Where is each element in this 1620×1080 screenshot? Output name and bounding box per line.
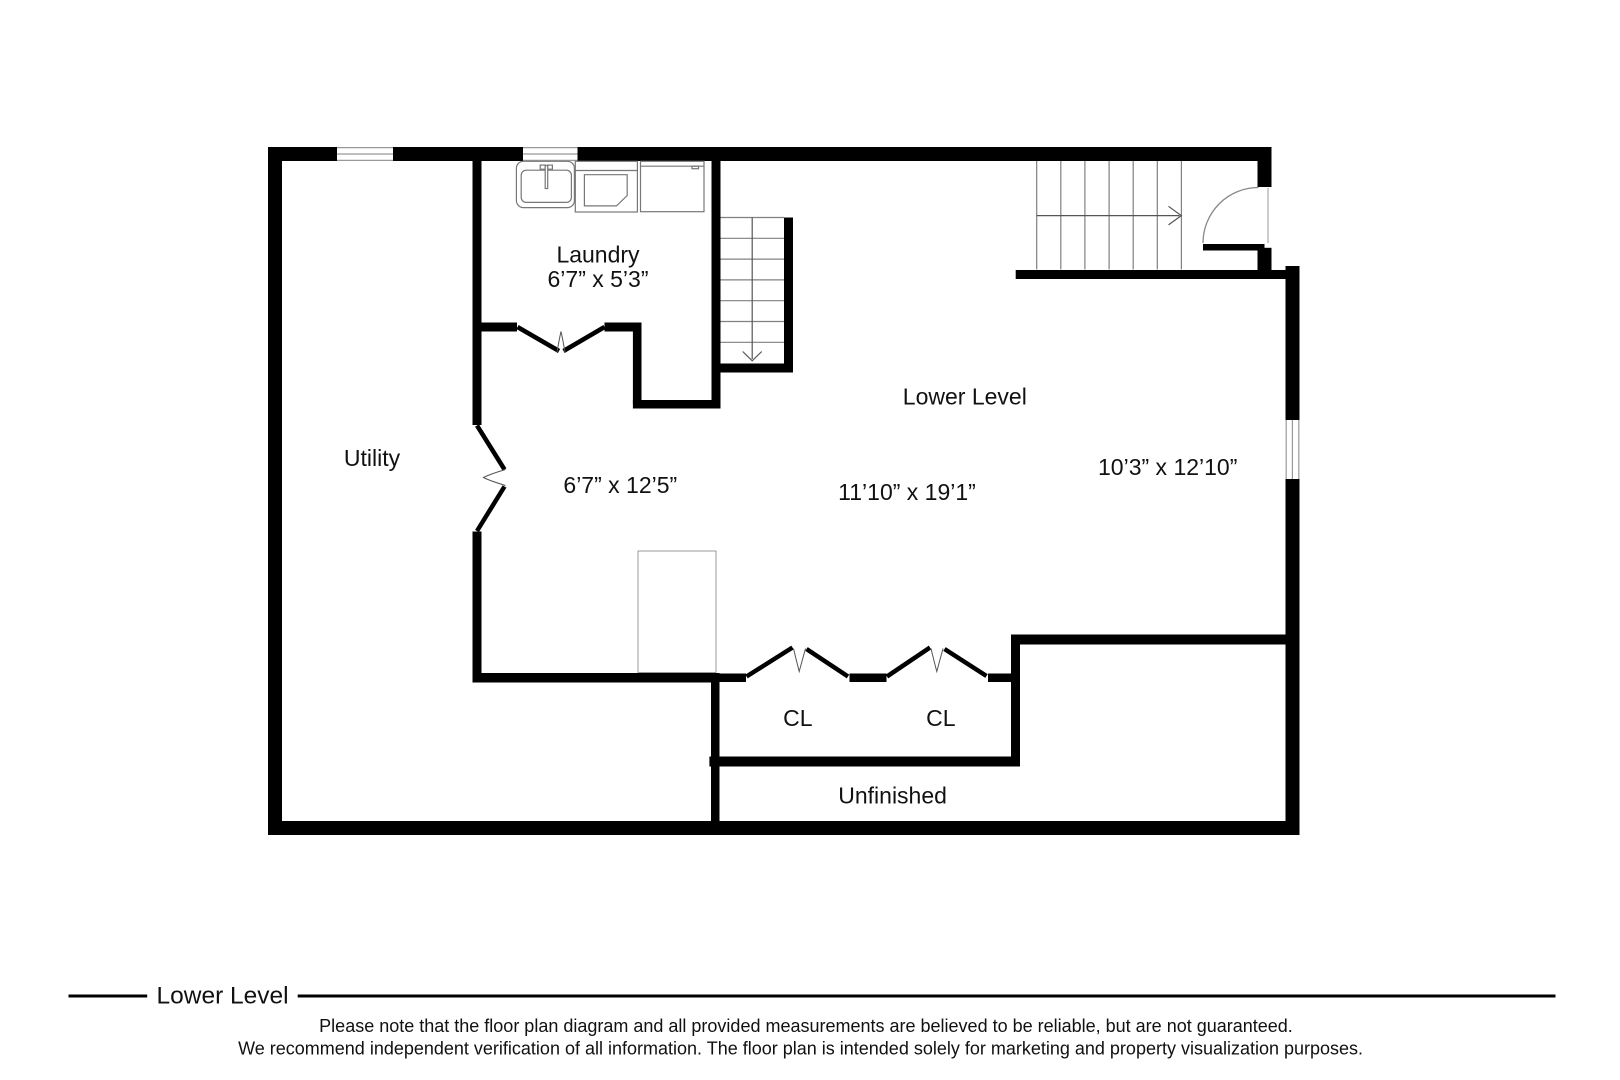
svg-text:Lower Level: Lower Level <box>157 983 289 1010</box>
svg-text:Utility: Utility <box>344 445 401 471</box>
svg-text:Unfinished: Unfinished <box>838 782 947 808</box>
svg-text:Please note that the floor pla: Please note that the floor plan diagram … <box>319 1016 1293 1036</box>
svg-text:Laundry: Laundry <box>556 241 640 267</box>
svg-text:11’10” x 19’1”: 11’10” x 19’1” <box>838 479 976 505</box>
svg-text:CL: CL <box>926 705 956 731</box>
svg-text:6’7” x 5’3”: 6’7” x 5’3” <box>548 266 649 292</box>
svg-text:We recommend independent verif: We recommend independent verification of… <box>238 1039 1363 1059</box>
svg-text:6’7” x 12’5”: 6’7” x 12’5” <box>563 472 677 498</box>
svg-text:Lower Level: Lower Level <box>903 383 1027 409</box>
svg-text:CL: CL <box>783 705 813 731</box>
svg-text:10’3” x 12’10”: 10’3” x 12’10” <box>1098 454 1237 480</box>
